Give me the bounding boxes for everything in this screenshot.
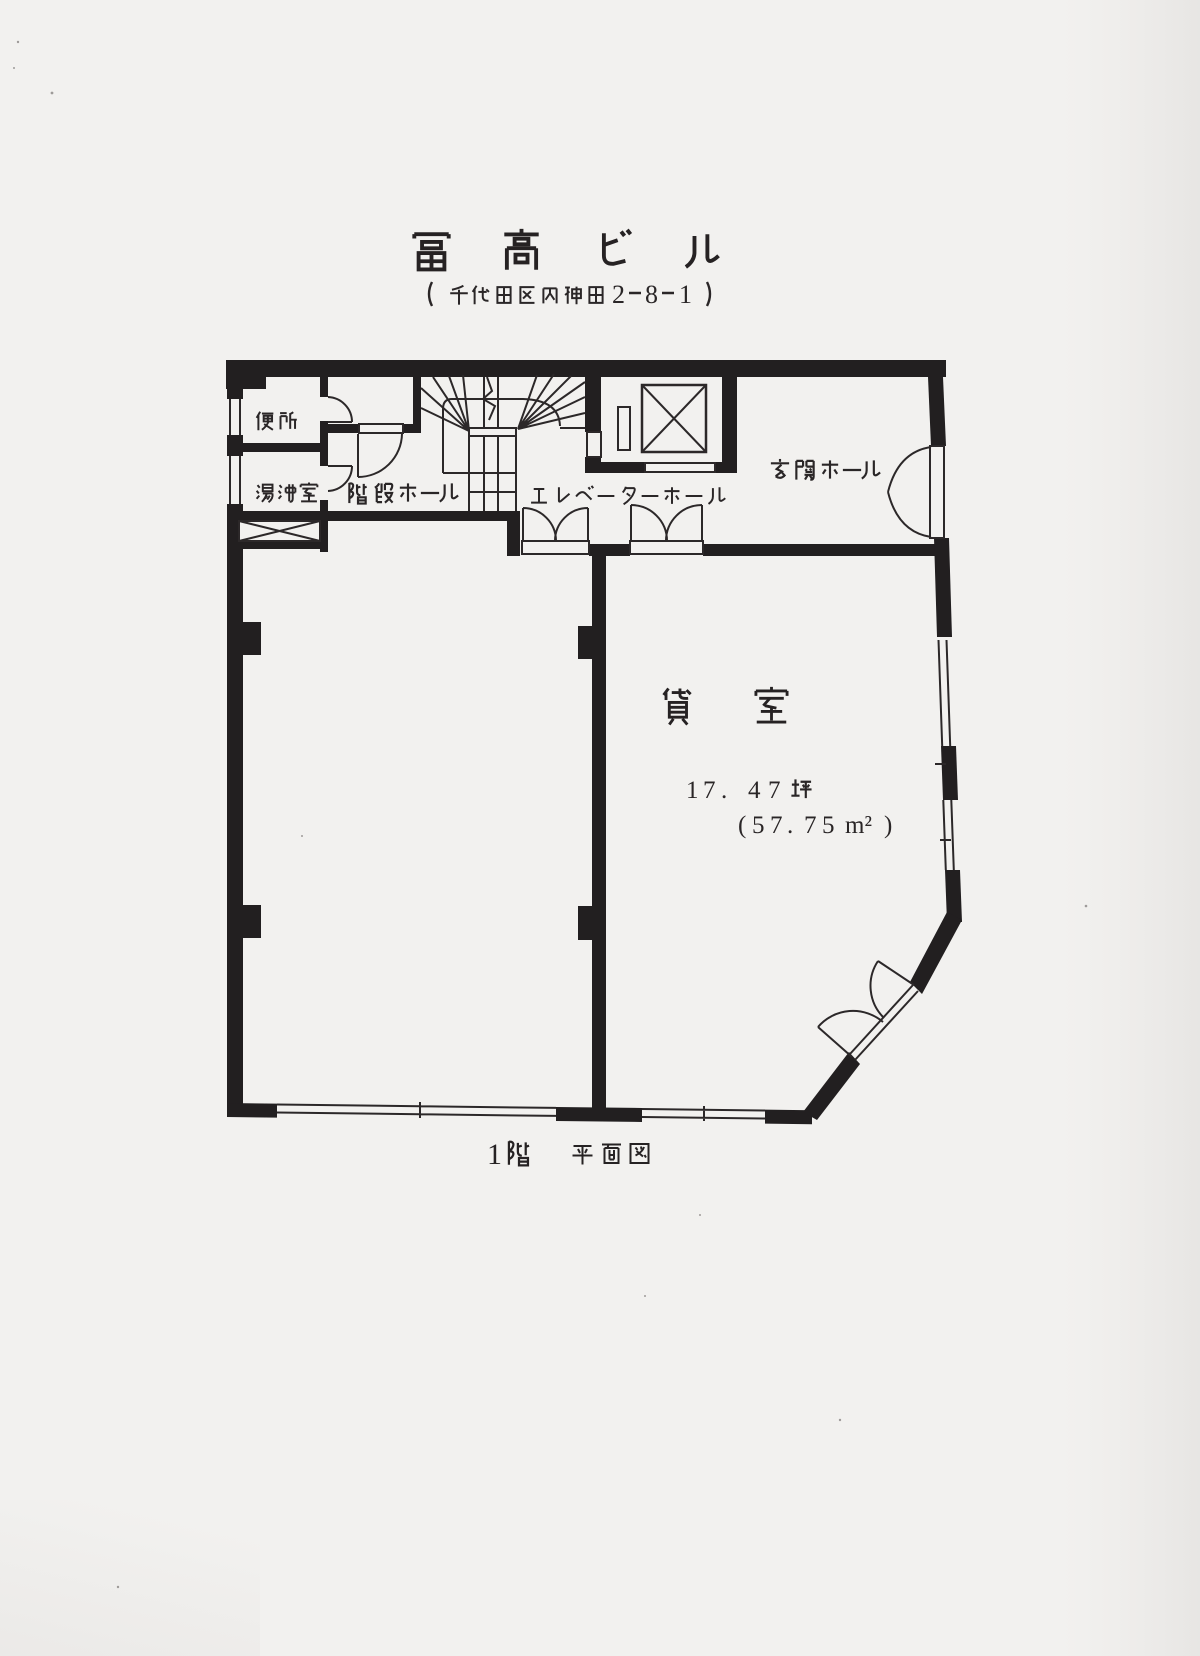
svg-text:7: 7 (804, 812, 817, 839)
svg-text:1: 1 (679, 280, 692, 309)
svg-text:7: 7 (703, 777, 716, 804)
svg-text:5: 5 (822, 812, 835, 839)
svg-text:m²: m² (845, 812, 872, 839)
svg-text:(: ( (738, 812, 746, 839)
svg-text:5: 5 (752, 812, 765, 839)
svg-text:.: . (787, 812, 793, 839)
svg-text:4: 4 (748, 777, 761, 804)
svg-text:7: 7 (768, 777, 781, 804)
svg-text:2: 2 (612, 280, 625, 309)
svg-text:8: 8 (645, 280, 658, 309)
svg-text:1: 1 (686, 777, 699, 804)
svg-text:.: . (721, 777, 727, 804)
svg-text:7: 7 (770, 812, 783, 839)
svg-text:1: 1 (487, 1138, 502, 1171)
svg-text:): ) (884, 812, 892, 839)
